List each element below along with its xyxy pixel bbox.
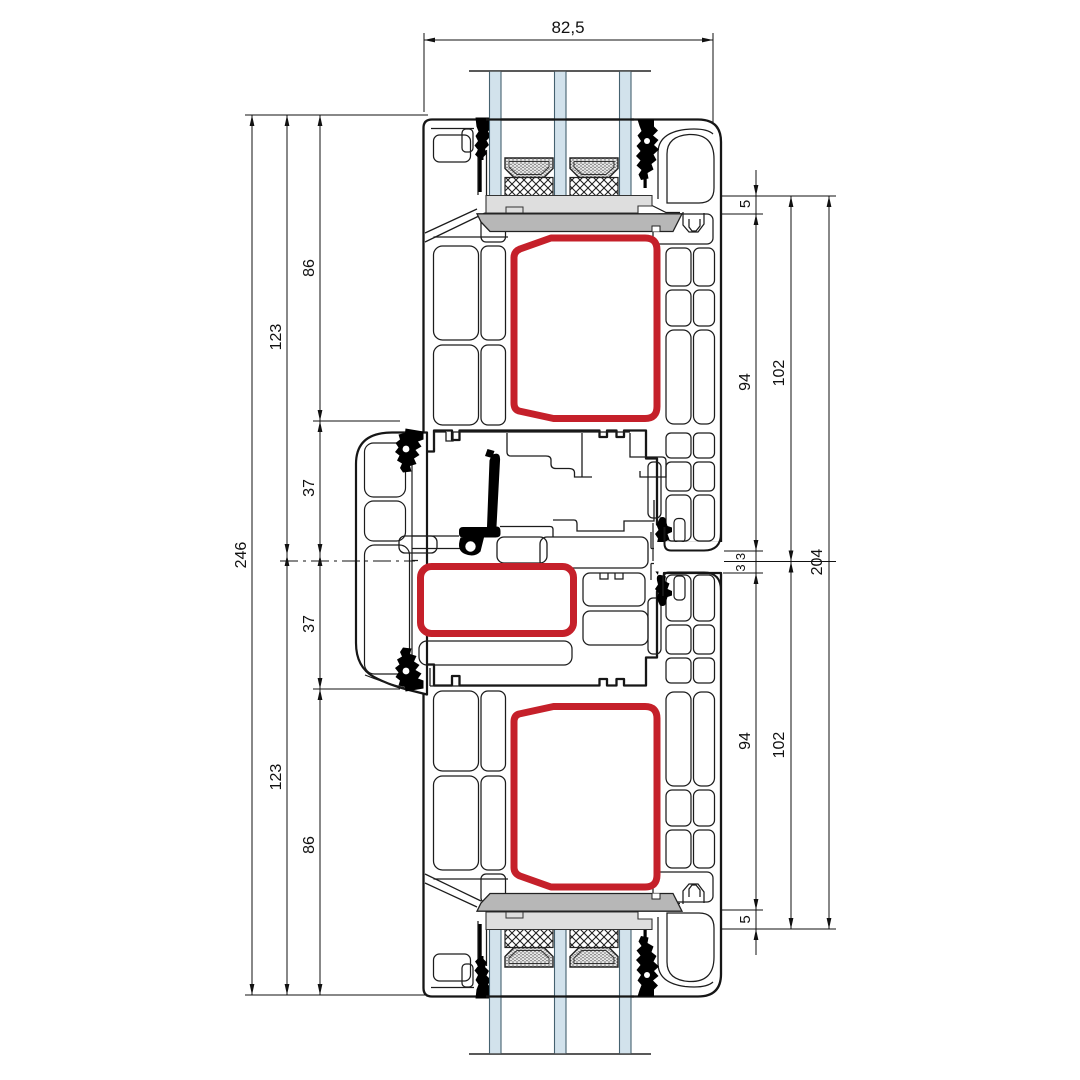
svg-text:102: 102	[771, 360, 788, 387]
svg-text:102: 102	[771, 732, 788, 759]
svg-text:204: 204	[809, 549, 826, 576]
svg-text:86: 86	[301, 836, 318, 854]
svg-text:246: 246	[233, 542, 250, 569]
svg-text:86: 86	[301, 259, 318, 277]
svg-text:3: 3	[733, 564, 748, 571]
svg-text:123: 123	[268, 764, 285, 791]
svg-text:94: 94	[737, 373, 754, 391]
svg-text:123: 123	[268, 324, 285, 351]
svg-text:37: 37	[301, 479, 318, 497]
svg-text:94: 94	[737, 732, 754, 750]
svg-text:37: 37	[301, 615, 318, 633]
svg-text:3: 3	[733, 553, 748, 560]
svg-text:5: 5	[737, 915, 754, 923]
svg-text:82,5: 82,5	[551, 18, 584, 37]
svg-text:5: 5	[737, 200, 754, 208]
